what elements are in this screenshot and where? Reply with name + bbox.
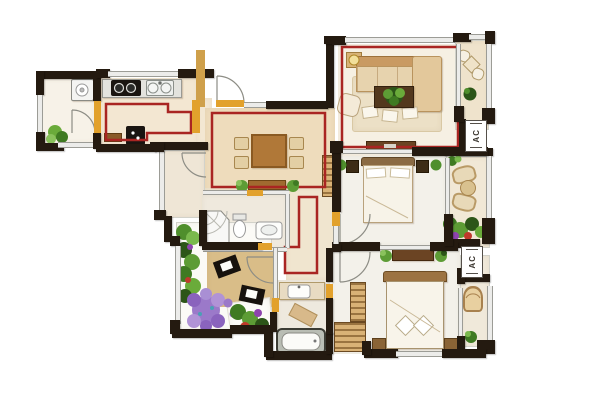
wall-thin <box>380 245 430 250</box>
window <box>345 37 455 43</box>
entry-threshold <box>216 100 244 107</box>
wall-segment <box>362 341 371 355</box>
window <box>487 286 493 342</box>
wall-segment <box>326 248 333 282</box>
wall-segment <box>199 210 207 246</box>
window <box>486 156 492 218</box>
ac-platform-2: AC <box>461 246 483 278</box>
wall-segment <box>444 214 453 246</box>
ac-bracket-tick <box>466 273 478 275</box>
wall-segment <box>326 40 334 108</box>
door-opening-marker <box>94 101 101 134</box>
wall-segment <box>266 101 328 109</box>
floor-plan: AC AC <box>0 0 600 400</box>
door-opening-marker <box>272 298 279 312</box>
wall-segment <box>412 147 446 156</box>
wall-segment <box>36 71 98 79</box>
window <box>58 142 96 148</box>
door-opening-marker <box>192 100 200 133</box>
wall-thin <box>273 248 278 298</box>
wall-segment <box>332 36 346 45</box>
wall-segment <box>454 106 464 122</box>
wall-segment <box>457 336 465 350</box>
wall-thin <box>203 190 289 195</box>
wall-segment <box>170 236 180 246</box>
window <box>396 351 444 357</box>
wall-thin <box>445 158 450 214</box>
door-opening-marker <box>258 243 272 250</box>
partition <box>196 50 205 107</box>
wall-segment <box>332 148 341 212</box>
wall-segment <box>485 31 495 44</box>
wall-segment <box>482 218 495 244</box>
window <box>159 150 165 212</box>
wall-segment <box>326 298 333 334</box>
wall-segment <box>332 244 341 252</box>
ac-label: AC <box>472 129 481 143</box>
wall-thin <box>343 149 413 154</box>
wall-segment <box>96 144 156 152</box>
wall-segment <box>36 71 44 95</box>
ac-platform-1: AC <box>465 120 487 152</box>
window <box>486 44 492 110</box>
wall-segment <box>154 142 164 152</box>
wall-segment <box>202 242 262 250</box>
door-opening-marker <box>332 212 340 226</box>
door-opening-marker <box>247 190 263 196</box>
wall-segment <box>270 312 277 332</box>
window <box>175 246 181 324</box>
wall-segment <box>330 141 343 153</box>
window <box>37 95 43 133</box>
window <box>456 44 461 108</box>
wall-segment <box>172 329 232 338</box>
ac-label: AC <box>468 255 477 269</box>
ac-bracket-tick <box>466 249 478 251</box>
wall-thin <box>285 194 290 248</box>
wall-segment <box>442 349 486 358</box>
wall-thin <box>333 226 339 246</box>
wall-segment <box>266 351 332 360</box>
walls-layer <box>0 0 600 400</box>
window <box>108 71 182 77</box>
wall-segment <box>264 329 273 357</box>
wall-segment <box>326 332 333 354</box>
window <box>458 288 463 336</box>
ac-bracket-tick <box>470 123 482 125</box>
wall-thin <box>244 102 268 108</box>
ac-bracket-tick <box>470 147 482 149</box>
door-opening-marker <box>326 284 333 298</box>
